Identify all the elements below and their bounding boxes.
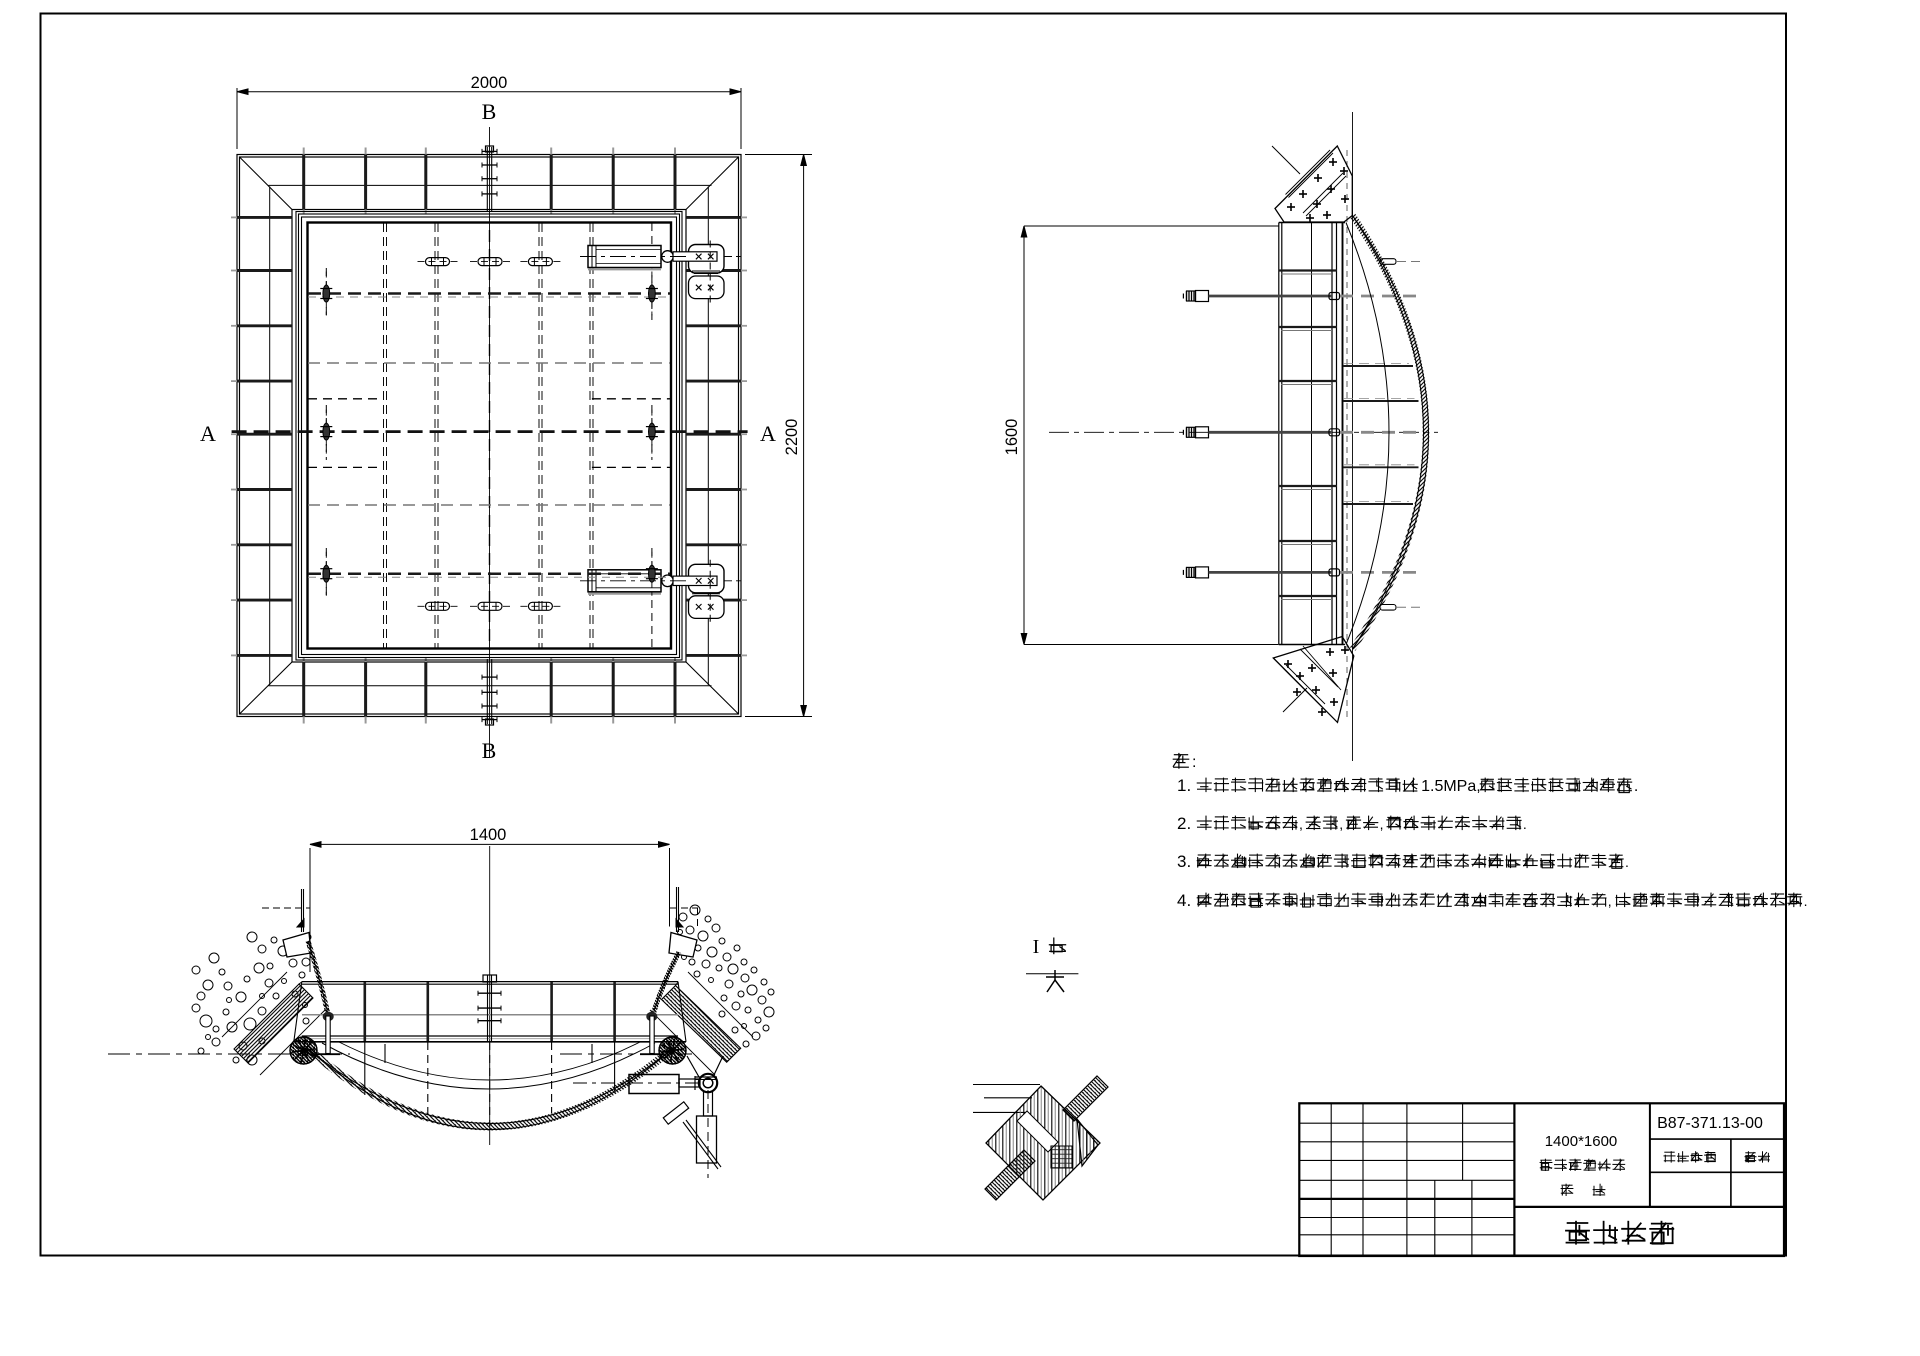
svg-text:A: A	[760, 421, 776, 446]
svg-text:2.: 2.	[1177, 814, 1191, 833]
svg-text:2000: 2000	[471, 74, 508, 92]
svg-text:B: B	[482, 738, 497, 763]
svg-text:,: ,	[1299, 816, 1303, 832]
svg-text:A: A	[200, 421, 216, 446]
svg-text:.: .	[1523, 816, 1527, 832]
svg-text:,: ,	[1339, 816, 1343, 832]
svg-text:1600: 1600	[1003, 419, 1021, 456]
svg-text:.: .	[1634, 778, 1638, 795]
svg-text:.: .	[1804, 893, 1808, 909]
svg-text:3.: 3.	[1177, 852, 1191, 871]
svg-text:B87-371.13-00: B87-371.13-00	[1657, 1115, 1763, 1132]
svg-text:1.5MPa,: 1.5MPa,	[1421, 778, 1481, 795]
svg-text:,: ,	[1380, 816, 1384, 832]
svg-text:4.: 4.	[1177, 891, 1191, 910]
svg-text::: :	[1192, 754, 1196, 771]
svg-text:1.: 1.	[1177, 776, 1191, 795]
svg-text:B: B	[482, 99, 497, 124]
svg-text:I: I	[1033, 936, 1040, 958]
svg-text:2200: 2200	[783, 419, 801, 456]
svg-text:.: .	[1625, 854, 1629, 870]
svg-text:1400: 1400	[470, 826, 507, 844]
svg-text:1400*1600: 1400*1600	[1545, 1133, 1618, 1150]
svg-text:,: ,	[1608, 893, 1612, 909]
